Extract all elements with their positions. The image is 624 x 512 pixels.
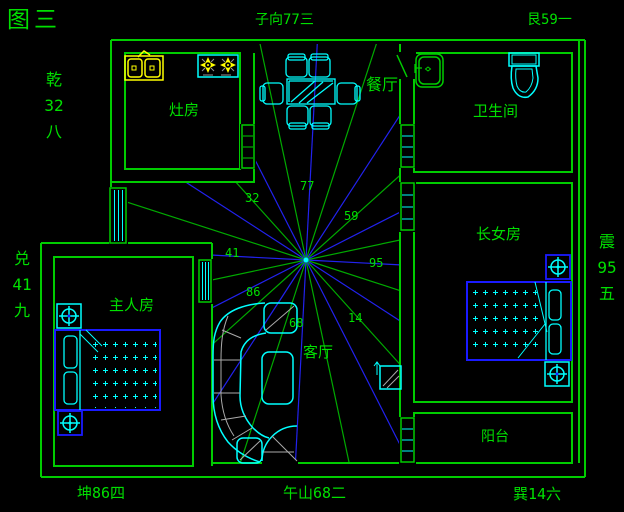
window-bathroom-wall-icon (399, 124, 416, 168)
compass-label-right-number: 95 (597, 260, 616, 277)
compass-label-left-top-char2: 八 (46, 124, 62, 141)
room-label-eldest-daughter: 长女房 (476, 227, 521, 243)
master-nightstand-top-icon (57, 304, 81, 328)
compass-label-left-top: 乾 32 八 (42, 72, 66, 140)
compass-label-left-bottom-number: 41 (12, 277, 31, 294)
compass-label-left-top-number: 32 (44, 98, 63, 115)
balcony-door-icon (399, 417, 416, 464)
dining-table-icon (287, 79, 335, 104)
window-master-wall-icon (198, 259, 213, 304)
compass-label-left-top-char: 乾 (46, 72, 62, 89)
room-label-bathroom: 卫生间 (473, 104, 518, 120)
entry-door-icon (262, 426, 298, 467)
flying-star-95: 95 (369, 257, 383, 270)
compass-label-left-bottom-char2: 九 (14, 303, 30, 320)
compass-label-right: 震 95 五 (595, 234, 619, 302)
room-label-kitchen: 灶房 (169, 103, 199, 119)
compass-label-right-char: 震 (599, 234, 615, 251)
flying-star-41: 41 (225, 247, 239, 260)
compass-label-left-bottom: 兑 41 九 (10, 251, 34, 319)
window-left-wall-icon (109, 187, 128, 245)
flying-star-68: 68 (289, 317, 303, 330)
flying-star-14: 14 (348, 312, 362, 325)
master-nightstand-bottom-icon (58, 411, 82, 435)
flying-star-86: 86 (246, 286, 260, 299)
stove-icon (198, 55, 238, 77)
flying-star-32: 32 (245, 192, 259, 205)
compass-label-top-right: 艮59一 (527, 13, 572, 28)
master-bed-icon (55, 330, 160, 410)
compass-label-right-char2: 五 (599, 286, 615, 303)
dining-chairs (260, 54, 360, 129)
compass-label-bottom-left: 坤86四 (77, 486, 125, 502)
compass-label-top-center: 子向77三 (255, 13, 314, 28)
daughter-nightstand-top-icon (546, 255, 570, 279)
room-label-living: 客厅 (303, 345, 333, 361)
toilet-icon (509, 53, 539, 97)
floor-plan-drawing (0, 0, 624, 512)
window-kitchen-wall-icon (240, 124, 256, 169)
coffee-table-icon (262, 352, 293, 404)
window-daughter-wall-icon (399, 182, 416, 232)
room-label-balcony: 阳台 (481, 430, 509, 445)
compass-center-point (304, 258, 309, 263)
compass-label-bottom-center: 午山68二 (283, 486, 346, 502)
floor-plan-canvas: 图三 子向77三 艮59一 乾 32 八 兑 41 九 震 95 五 坤86四 … (0, 0, 624, 512)
kitchen-sink-icon (125, 51, 163, 80)
room-label-master: 主人房 (109, 298, 154, 314)
daughter-bed-icon (467, 282, 571, 360)
daughter-nightstand-bottom-icon (545, 362, 569, 386)
figure-title: 图三 (7, 8, 61, 32)
flying-star-77: 77 (300, 180, 314, 193)
flying-star-59: 59 (344, 210, 358, 223)
room-label-dining: 餐厅 (366, 74, 383, 96)
tv-icon (374, 362, 401, 389)
compass-label-left-bottom-char: 兑 (14, 251, 30, 268)
compass-label-bottom-right: 巽14六 (513, 487, 561, 503)
bathroom-sink-icon (415, 54, 443, 87)
